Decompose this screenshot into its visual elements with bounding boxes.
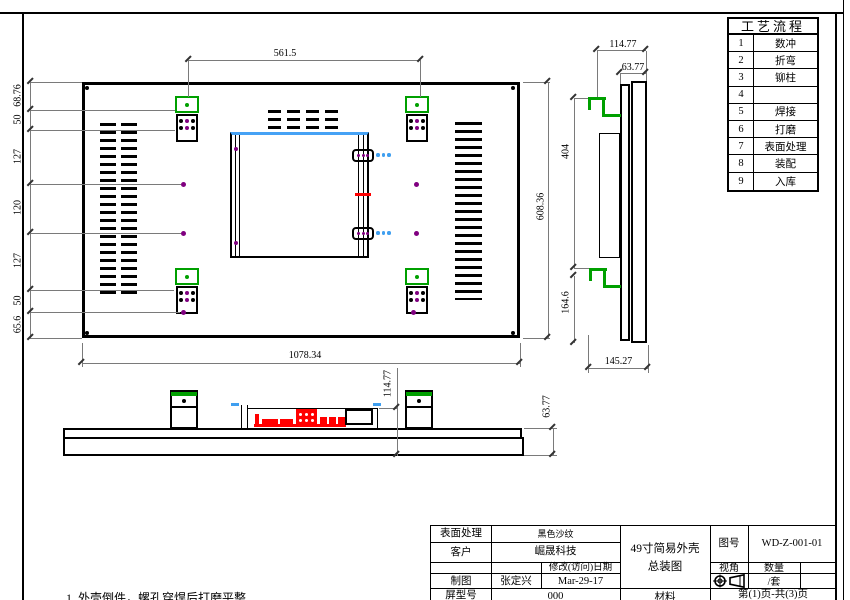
drawing-no-label: 图号 — [711, 538, 747, 551]
side-panel-rear — [620, 84, 630, 341]
dim-ext-line — [420, 60, 421, 97]
dim-ext-line — [597, 51, 598, 97]
bracket-hole-box — [406, 286, 428, 314]
connector-hole-cluster — [352, 226, 391, 240]
vesa-bracket-top-left — [175, 96, 199, 142]
hook-bracket-bottom — [603, 285, 621, 288]
bottom-bracket-left — [170, 390, 198, 429]
bracket-green-edge — [171, 392, 197, 396]
hole-row — [408, 126, 426, 130]
process-step-row: 2折弯 — [729, 52, 817, 69]
vesa-bracket-bottom-left — [175, 268, 199, 314]
dim-ext-line — [520, 343, 521, 367]
connector-hole-cluster — [352, 148, 391, 162]
bracket-hole — [417, 399, 421, 403]
hole-row — [178, 119, 196, 123]
dim-label: 404 — [561, 132, 572, 172]
date-value: Mar-29-17 — [542, 576, 619, 589]
process-step-row: 9入库 — [729, 173, 817, 190]
tray-wall-line — [377, 408, 378, 428]
dim-ext-line — [524, 455, 557, 456]
bottom-bracket-right — [405, 390, 433, 429]
dim-label: 608.36 — [536, 185, 547, 229]
hole-row — [178, 291, 196, 295]
io-baseline — [254, 424, 346, 427]
power-socket-outline — [345, 409, 373, 425]
dim-ext-line — [30, 290, 174, 291]
bracket-hole-box — [406, 114, 428, 142]
io-connectors — [252, 408, 352, 428]
dim-ext-line — [30, 233, 181, 234]
dim-ext-line — [524, 428, 557, 429]
vent-grid-top — [268, 110, 338, 129]
vent-column-left-1 — [100, 123, 116, 295]
bracket-green-plate — [175, 268, 199, 285]
corner-hole — [85, 331, 89, 335]
io-port — [320, 417, 327, 424]
frame-top-line — [0, 12, 843, 14]
hole-row — [178, 126, 196, 130]
io-port — [338, 417, 345, 424]
page-info: 第(1)页-共(3)页 — [711, 589, 835, 600]
dim-label: 145.27 — [589, 356, 648, 367]
process-step-row: 3铆柱 — [729, 69, 817, 86]
corner-hole — [511, 331, 515, 335]
side-panel-front — [631, 81, 647, 343]
dim-ext-line — [30, 82, 82, 83]
bracket-hole-box — [176, 114, 198, 142]
dim-label: 114.77 — [383, 362, 394, 406]
dim-ext-line — [574, 268, 589, 269]
bracket-hole-box — [176, 286, 198, 314]
dim-ext-line — [30, 338, 82, 339]
dim-ext-line — [188, 60, 189, 97]
hook-bracket-top — [588, 97, 591, 110]
hole-row — [178, 298, 196, 302]
dim-label: 127 — [13, 137, 24, 177]
dim-label: 65.6 — [13, 305, 24, 345]
dim-line — [82, 363, 520, 364]
blue-marker — [373, 403, 381, 406]
screw-hole — [414, 231, 419, 236]
vent-column-left-2 — [121, 123, 137, 295]
surface-value: 黑色沙纹 — [491, 529, 620, 540]
screw-hole — [181, 231, 186, 236]
process-table: 工艺流程 1数冲 2折弯 3铆柱 4 5焊接 6打磨 7表面处理 8装配 9入库 — [727, 17, 819, 192]
surface-label: 表面处理 — [432, 528, 490, 541]
dim-ext-line — [30, 184, 181, 185]
hook-bracket-top — [602, 114, 621, 117]
drawing-title: 49寸简易外壳 总装图 — [621, 540, 709, 577]
dim-line — [548, 82, 549, 338]
dim-ext-line — [574, 98, 588, 99]
screw-hole — [181, 182, 186, 187]
dim-chain-line — [30, 82, 31, 338]
side-backbox-profile — [599, 133, 620, 258]
process-step-row: 7表面处理 — [729, 138, 817, 155]
dim-label: 1078.34 — [270, 350, 340, 361]
hole-row — [408, 298, 426, 302]
frame-right-line — [835, 12, 837, 600]
backbox-outline — [230, 132, 369, 258]
projection-symbol-icon — [712, 574, 746, 588]
screw-hole — [411, 310, 416, 315]
bracket-green-plate — [405, 96, 429, 113]
drawing-no-value: WD-Z-001-01 — [749, 538, 835, 551]
model-label: 屏型号 — [432, 590, 490, 600]
bracket-pin-hole — [415, 275, 419, 279]
customer-label: 客户 — [432, 547, 490, 560]
titleblock-line — [430, 525, 431, 600]
dim-label: 561.5 — [260, 48, 310, 59]
corner-hole — [511, 86, 515, 90]
backbox-flange-line — [239, 135, 240, 256]
backbox-flange-line — [235, 135, 236, 256]
titleblock-line — [800, 562, 801, 588]
bracket-pin-hole — [185, 275, 189, 279]
process-step-row: 6打磨 — [729, 121, 817, 138]
dim-line — [188, 60, 420, 61]
bracket-hole — [182, 399, 186, 403]
dim-label: 164.6 — [561, 283, 572, 323]
bracket-pin-hole — [415, 103, 419, 107]
bracket-divider — [407, 406, 431, 408]
screw-hole — [414, 182, 419, 187]
drawing-sheet: 68.76 50 127 120 127 50 65.6 561.5 1078.… — [0, 0, 850, 600]
material-label: 材料 — [621, 592, 709, 600]
vent-column-right — [455, 122, 482, 300]
date-label: 修改(访问)日期 — [542, 563, 619, 574]
dim-ext-line — [30, 130, 175, 131]
dim-label: 114.77 — [598, 39, 648, 50]
vesa-bracket-top-right — [405, 96, 429, 142]
dim-line — [574, 276, 575, 343]
dim-ext-line — [30, 110, 175, 111]
bracket-divider — [172, 406, 196, 408]
tray-wall-line — [241, 405, 242, 428]
bracket-pin-hole — [185, 103, 189, 107]
titleblock-line — [430, 542, 620, 543]
process-step-row: 1数冲 — [729, 35, 817, 52]
bottom-bar-lower — [63, 437, 524, 456]
screw-hole — [234, 147, 238, 151]
bracket-green-plate — [175, 96, 199, 113]
process-table-title: 工艺流程 — [729, 19, 817, 35]
corner-hole — [85, 86, 89, 90]
dim-ext-line — [620, 74, 621, 84]
draft-label: 制图 — [432, 576, 490, 589]
hole-row — [408, 291, 426, 295]
dim-ext-line — [30, 312, 180, 313]
dim-line — [597, 50, 646, 51]
model-value: 000 — [491, 591, 620, 600]
bracket-green-edge — [406, 392, 432, 396]
red-marker-line — [355, 193, 371, 196]
dim-line — [574, 98, 575, 268]
hook-bracket-bottom — [589, 268, 592, 281]
io-port — [255, 414, 259, 424]
process-step-row: 8装配 — [729, 155, 817, 172]
bracket-green-plate — [405, 268, 429, 285]
hole-row — [408, 119, 426, 123]
vesa-bracket-bottom-right — [405, 268, 429, 314]
screw-hole — [234, 241, 238, 245]
dim-ext-line — [648, 345, 649, 373]
qty-label: 数量 — [749, 563, 799, 575]
dim-line — [397, 368, 398, 456]
dim-label: 63.77 — [542, 388, 553, 426]
customer-value: 崛晟科技 — [491, 546, 620, 559]
dim-label: 127 — [13, 241, 24, 281]
dim-label: 50 — [13, 100, 24, 140]
qty-value: /套 — [749, 577, 799, 589]
frame-right-outer-line — [843, 0, 844, 600]
hole-group-outline — [352, 149, 374, 162]
drawing-note: 1. 外壳倒件，螺孔穿焊后打磨平整 — [66, 592, 246, 600]
io-port — [329, 417, 336, 424]
dim-line — [589, 368, 648, 369]
hole-group-outline — [352, 227, 374, 240]
dim-label: 120 — [13, 188, 24, 228]
process-step-row: 5焊接 — [729, 104, 817, 121]
blue-marker — [231, 403, 239, 406]
process-step-row: 4 — [729, 87, 817, 104]
dim-ext-line — [82, 343, 83, 367]
draft-value: 张定兴 — [492, 576, 540, 589]
screw-hole — [181, 310, 186, 315]
